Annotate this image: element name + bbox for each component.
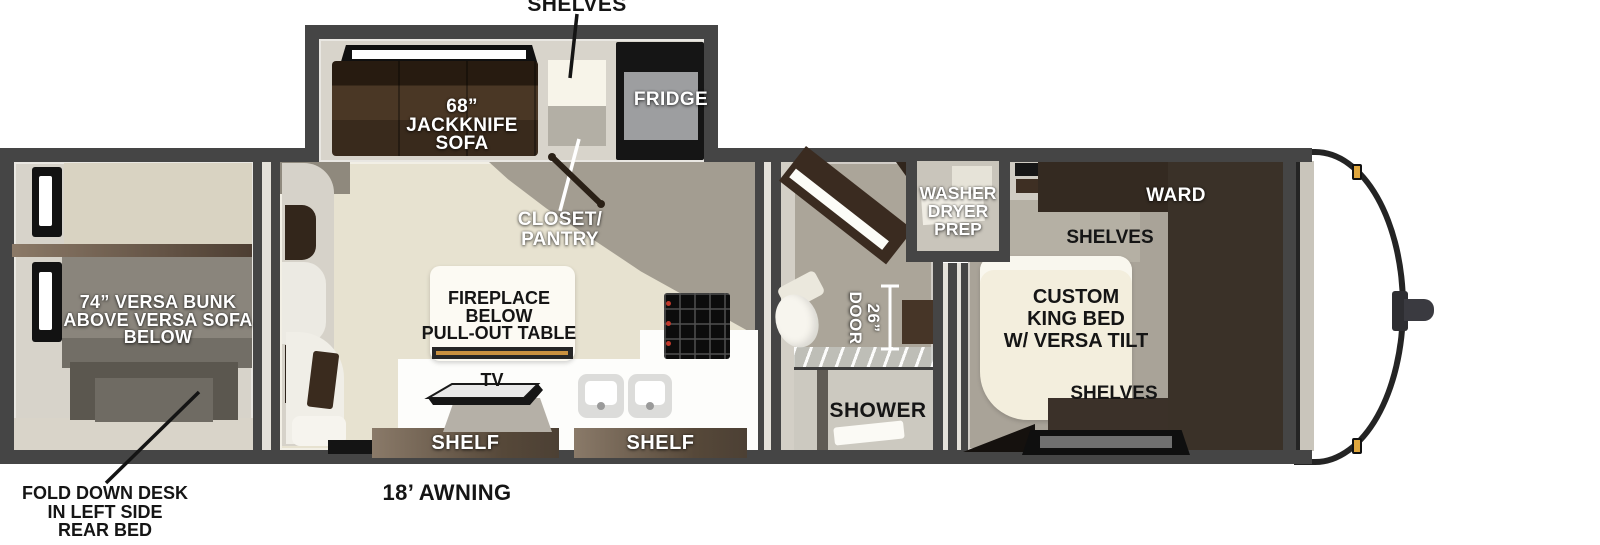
rear-window-1-pane (39, 176, 52, 226)
shelf-bar-right: SHELF (574, 428, 747, 458)
sink-right-drain (646, 402, 654, 410)
tv-label: TV (452, 370, 532, 391)
marker-light-top-icon (1352, 164, 1362, 180)
shelf-right-label: SHELF (574, 428, 747, 458)
divider-bath-right-c (961, 263, 968, 450)
versa-bunk-label: 74” VERSA BUNK ABOVE VERSA SOFA BELOW (33, 294, 283, 347)
fridge-label: FRIDGE (611, 89, 731, 111)
stove-knob-2 (666, 321, 671, 326)
marker-light-bottom-icon (1352, 438, 1362, 454)
bath-ledge (902, 300, 933, 344)
slideout-wall-left (305, 25, 319, 162)
entertainment-niche-top (285, 205, 316, 260)
stove-knob-3 (666, 341, 671, 346)
wall-top-left (0, 148, 319, 162)
shelf-left-label: SHELF (372, 428, 559, 458)
fireplace-label: FIREPLACE BELOW PULL-OUT TABLE (409, 290, 589, 343)
front-cap-inner-wall (1300, 161, 1314, 451)
door-26-label: 26” DOOR (844, 282, 882, 354)
rear-shelf-bar (12, 244, 252, 257)
stove (664, 293, 730, 359)
awning-label: 18’ AWNING (347, 480, 547, 506)
bedroom-shelves-top-label: SHELVES (1050, 227, 1170, 249)
sink-left-drain (597, 402, 605, 410)
wall-right (1283, 148, 1296, 464)
ward-label: WARD (1120, 185, 1232, 207)
hitch-coupler (1404, 299, 1434, 321)
divider-bath-left-gap (764, 162, 771, 450)
washer-dryer-prep-label: WASHER DRYER PREP (902, 184, 1014, 238)
slideout-wall-top (305, 25, 718, 39)
fold-down-desk-note: FOLD DOWN DESK IN LEFT SIDE REAR BED (5, 484, 205, 540)
bedroom-shelves-bottom-label: SHELVES (1054, 383, 1174, 405)
rear-overhead-wood (64, 163, 252, 245)
closet-pantry-label: CLOSET/ PANTRY (480, 210, 640, 249)
slideout-window-pane (352, 50, 526, 59)
shelf-bar-left: SHELF (372, 428, 559, 458)
bedroom-bottom-window-pane (1040, 436, 1172, 448)
versa-sofa-step-mid (95, 378, 213, 422)
closet-shelf-white (548, 60, 606, 106)
shelves-top-callout-label: SHELVES (507, 0, 647, 17)
closet-lower (548, 106, 606, 146)
floorplan-canvas: SHELF SHELF (0, 0, 1600, 545)
shower-label: SHOWER (798, 399, 958, 423)
wall-left (0, 148, 14, 464)
jackknife-sofa-label: 68” JACKKNIFE SOFA (377, 98, 547, 154)
fireplace-glow (436, 351, 568, 355)
stove-knob-1 (666, 301, 671, 306)
rear-floor-strip (14, 418, 253, 450)
king-bed-label: CUSTOM KING BED W/ VERSA TILT (976, 286, 1176, 352)
